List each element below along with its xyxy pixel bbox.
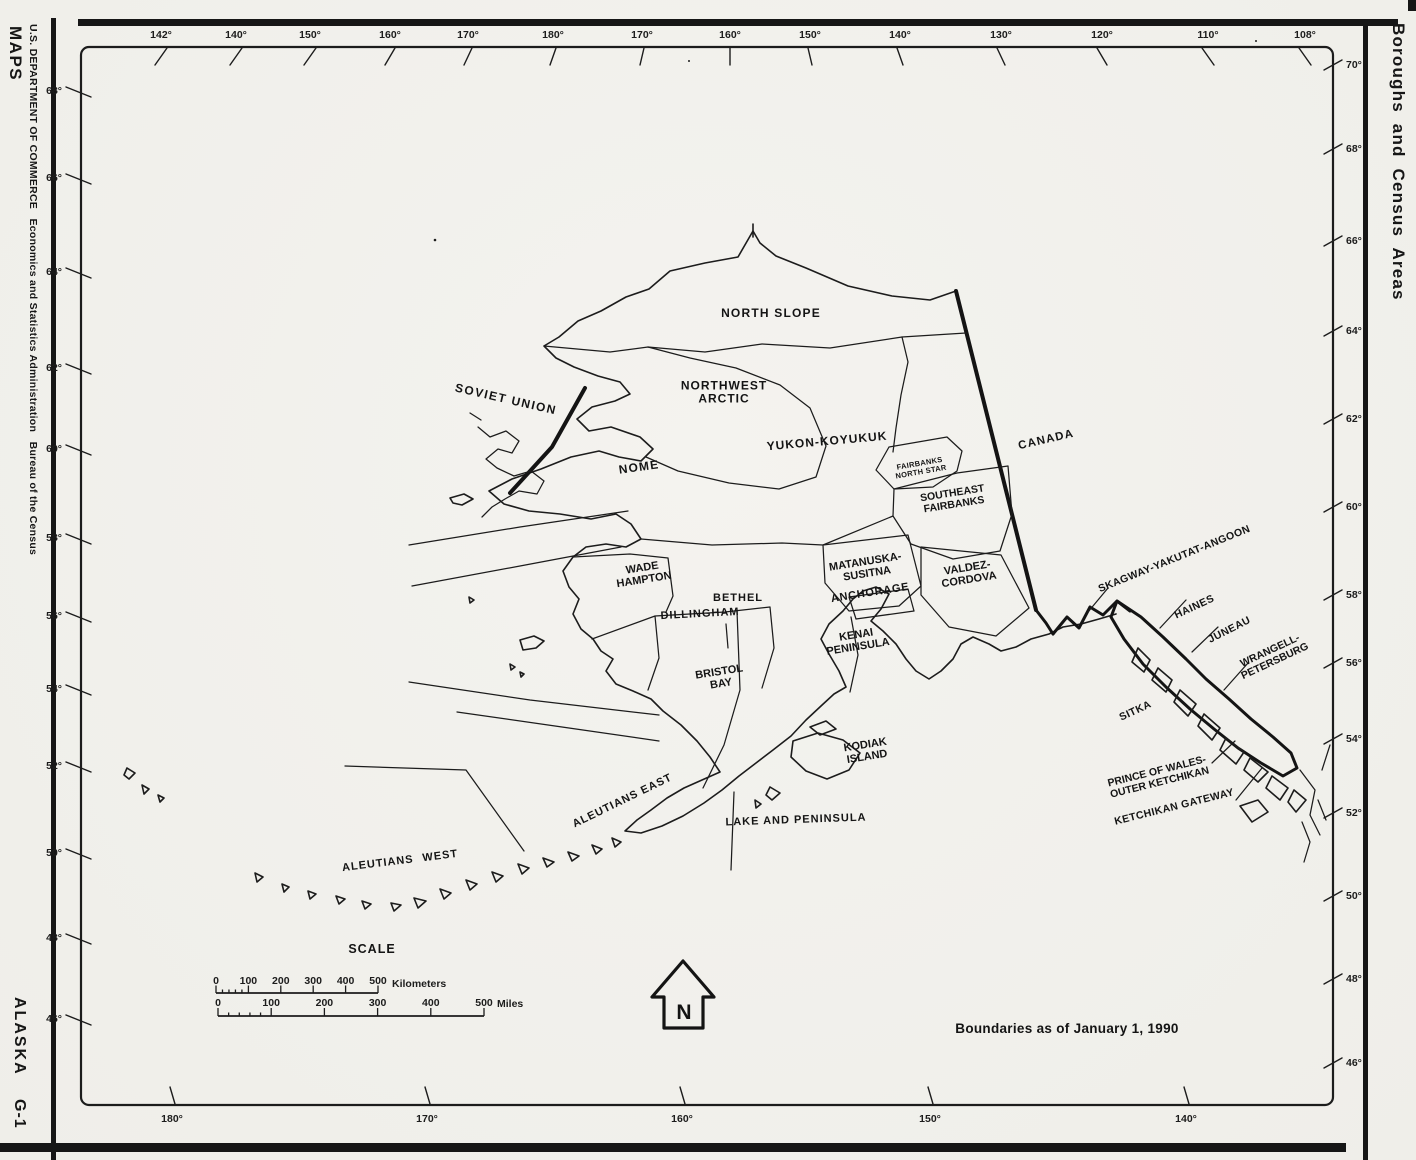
region-label-bristol-bay: BRISTOLBAY bbox=[695, 662, 747, 693]
graticule-tick-top bbox=[464, 48, 472, 65]
scale-tick-label: 100 bbox=[262, 997, 280, 1009]
region-label-skagway-yakutat-angoon: SKAGWAY-YAKUTAT-ANGOON bbox=[1097, 523, 1252, 595]
graticule-tick-top bbox=[550, 48, 556, 65]
graticule-label-top: 170° bbox=[631, 29, 653, 41]
graticule-label-left: 68° bbox=[46, 85, 62, 97]
km-unit-label: Kilometers bbox=[392, 978, 446, 990]
graticule-label-right: 46° bbox=[1346, 1057, 1362, 1069]
region-label-aleutians-west: ALEUTIANS WEST bbox=[341, 848, 458, 874]
scale-tick-label: 0 bbox=[213, 975, 219, 987]
graticule-label-right: 62° bbox=[1346, 413, 1362, 425]
scan-speck bbox=[1255, 40, 1257, 42]
region-label-nome: NOME bbox=[618, 457, 660, 477]
graticule-label-right: 50° bbox=[1346, 890, 1362, 902]
graticule-label-top: 170° bbox=[457, 29, 479, 41]
mi-scale-ticks: 0100200300400500 bbox=[215, 997, 493, 1016]
graticule-label-left: 66° bbox=[46, 172, 62, 184]
region-label-northwest-arctic: NORTHWESTARCTIC bbox=[681, 379, 767, 406]
graticule-label-left: 64° bbox=[46, 266, 62, 278]
scan-speck bbox=[434, 239, 437, 242]
scale-tick-label: 100 bbox=[240, 975, 258, 987]
scan-corner-chunk bbox=[1408, 0, 1416, 11]
graticule-label-top: 150° bbox=[299, 29, 321, 41]
scale-tick-label: 300 bbox=[369, 997, 387, 1009]
graticule-label-bottom: 180° bbox=[161, 1113, 183, 1125]
alaska-mainland-coastline bbox=[489, 231, 1116, 833]
graticule-label-right: 48° bbox=[1346, 973, 1362, 985]
region-labels: SOVIET UNIONNORTH SLOPENORTHWESTARCTICNO… bbox=[341, 306, 1310, 874]
scale-title: SCALE bbox=[348, 942, 395, 956]
graticule-tick-left bbox=[66, 268, 91, 278]
graticule-tick-left bbox=[66, 534, 91, 544]
scan-speck bbox=[688, 60, 690, 62]
bering-sea-islands bbox=[450, 494, 544, 677]
panhandle-fjord-lines bbox=[1300, 745, 1330, 862]
region-label-juneau: JUNEAU bbox=[1206, 614, 1253, 646]
kodiak-island-group bbox=[755, 721, 860, 808]
graticule-tick-left bbox=[66, 174, 91, 184]
aleutian-islands-chain bbox=[124, 768, 621, 911]
mi-unit-label: Miles bbox=[497, 998, 523, 1010]
graticule-tick-left bbox=[66, 849, 91, 859]
graticule-label-left: 52° bbox=[46, 760, 62, 772]
scale-tick-label: 500 bbox=[369, 975, 387, 987]
graticule-tick-top bbox=[1097, 48, 1107, 65]
graticule-label-top: 140° bbox=[889, 29, 911, 41]
north-arrow-letter: N bbox=[676, 1001, 691, 1024]
region-label-haines: HAINES bbox=[1173, 592, 1217, 621]
graticule-label-left: 48° bbox=[46, 932, 62, 944]
yukon-koyukuk-east-boundary bbox=[893, 337, 908, 452]
graticule-label-bottom: 150° bbox=[919, 1113, 941, 1125]
region-label-north-slope: NORTH SLOPE bbox=[721, 306, 821, 320]
graticule-label-right: 54° bbox=[1346, 733, 1362, 745]
graticule-label-top: 120° bbox=[1091, 29, 1113, 41]
km-scale-ticks: 0100200300400500 bbox=[213, 975, 387, 993]
scan-line-right bbox=[1363, 19, 1368, 1160]
graticule-tick-left bbox=[66, 364, 91, 374]
graticule-tick-left bbox=[66, 1015, 91, 1025]
graticule-tick-bottom bbox=[928, 1087, 933, 1104]
scale-tick-label: 400 bbox=[422, 997, 440, 1009]
graticule-label-bottom: 170° bbox=[416, 1113, 438, 1125]
graticule-label-top: 108° bbox=[1294, 29, 1316, 41]
graticule-tick-top bbox=[1299, 48, 1311, 65]
region-label-wrangell-petersburg: WRANGELL-PETERSBURG bbox=[1234, 630, 1310, 682]
graticule-label-top: 160° bbox=[719, 29, 741, 41]
graticule-label-right: 56° bbox=[1346, 657, 1362, 669]
graticule-tick-top bbox=[304, 48, 316, 65]
graticule-label-top: 160° bbox=[379, 29, 401, 41]
scale-tick-label: 500 bbox=[475, 997, 493, 1009]
region-label-fairbanks-north-star: FAIRBANKSNORTH STAR bbox=[893, 454, 947, 480]
southeast-panhandle-outline bbox=[1111, 601, 1297, 776]
north-arrow: N bbox=[652, 961, 714, 1028]
graticule-label-right: 66° bbox=[1346, 235, 1362, 247]
graticule-label-right: 52° bbox=[1346, 807, 1362, 819]
graticule-label-left: 54° bbox=[46, 683, 62, 695]
region-label-aleutians-east: ALEUTIANS EAST bbox=[571, 772, 675, 831]
graticule-label-left: 58° bbox=[46, 532, 62, 544]
scan-bar-bottom bbox=[0, 1143, 1346, 1152]
graticule-label-bottom: 160° bbox=[671, 1113, 693, 1125]
graticule-tick-left bbox=[66, 762, 91, 772]
graticule-tick-top bbox=[230, 48, 242, 65]
graticule-label-top: 150° bbox=[799, 29, 821, 41]
graticule-label-left: 62° bbox=[46, 362, 62, 374]
graticule-tick-left bbox=[66, 934, 91, 944]
canada-border-panhandle-join bbox=[1036, 610, 1053, 634]
graticule-tick-bottom bbox=[1184, 1087, 1189, 1104]
region-label-yukon-koyukuk: YUKON-KOYUKUK bbox=[766, 429, 888, 453]
boundaries-note: Boundaries as of January 1, 1990 bbox=[955, 1021, 1178, 1036]
region-label-sitka: SITKA bbox=[1117, 698, 1153, 723]
graticule-label-top: 142° bbox=[150, 29, 172, 41]
graticule-label-right: 64° bbox=[1346, 325, 1362, 337]
graticule-label-left: 46° bbox=[46, 1013, 62, 1025]
graticule-label-top: 180° bbox=[542, 29, 564, 41]
graticule-label-top: 130° bbox=[990, 29, 1012, 41]
map-sheet: U.S. DEPARTMENT OF COMMERCE Economics an… bbox=[0, 0, 1416, 1160]
graticule-right: 70°68°66°64°62°60°58°56°54°52°50°48°46° bbox=[1324, 59, 1362, 1069]
region-label-canada: CANADA bbox=[1017, 428, 1075, 453]
graticule-label-right: 68° bbox=[1346, 143, 1362, 155]
graticule-label-right: 58° bbox=[1346, 589, 1362, 601]
graticule-tick-bottom bbox=[680, 1087, 685, 1104]
graticule-label-top: 140° bbox=[225, 29, 247, 41]
graticule-tick-top bbox=[808, 48, 812, 65]
scan-bar-top bbox=[78, 19, 1398, 26]
graticule-tick-bottom bbox=[170, 1087, 175, 1104]
graticule-tick-top bbox=[897, 48, 903, 65]
graticule-tick-top bbox=[155, 48, 167, 65]
scale-tick-label: 200 bbox=[272, 975, 290, 987]
graticule-tick-bottom bbox=[425, 1087, 430, 1104]
bristol-bay-lake-peninsula-boundary bbox=[703, 611, 740, 870]
region-label-wade-hampton: WADEHAMPTON bbox=[614, 558, 673, 590]
scale-tick-label: 400 bbox=[337, 975, 355, 987]
scale-tick-label: 200 bbox=[316, 997, 334, 1009]
region-label-lake-and-peninsula: LAKE AND PENINSULA bbox=[725, 812, 866, 829]
graticule-label-bottom: 140° bbox=[1175, 1113, 1197, 1125]
region-label-kodiak-island: KODIAKISLAND bbox=[843, 736, 890, 767]
graticule-label-right: 70° bbox=[1346, 59, 1362, 71]
graticule-tick-top bbox=[640, 48, 644, 65]
graticule-label-right: 60° bbox=[1346, 501, 1362, 513]
map-canvas: 142°140°150°160°170°180°170°160°150°140°… bbox=[0, 0, 1416, 1160]
region-label-prince-of-wales-outer-ketchikan: PRINCE OF WALES-OUTER KETCHIKAN bbox=[1106, 753, 1210, 800]
scale-block: SCALE 0100200300400500 0100200300400500 … bbox=[213, 942, 523, 1016]
scale-tick-label: 0 bbox=[215, 997, 221, 1009]
graticule-tick-top bbox=[997, 48, 1005, 65]
region-label-bethel: BETHEL bbox=[713, 592, 763, 604]
scan-line-left bbox=[51, 18, 56, 1160]
region-label-anchorage: ANCHORAGE bbox=[830, 581, 910, 605]
graticule-label-left: 50° bbox=[46, 847, 62, 859]
graticule-tick-left bbox=[66, 612, 91, 622]
scale-tick-label: 300 bbox=[304, 975, 322, 987]
graticule-label-top: 110° bbox=[1197, 29, 1218, 41]
region-label-soviet-union: SOVIET UNION bbox=[454, 380, 558, 417]
graticule-tick-left bbox=[66, 685, 91, 695]
graticule-label-left: 56° bbox=[46, 610, 62, 622]
graticule-tick-top bbox=[1202, 48, 1214, 65]
graticule-label-left: 60° bbox=[46, 443, 62, 455]
graticule-tick-left bbox=[66, 445, 91, 455]
region-label-valdez-cordova: VALDEZ-CORDOVA bbox=[939, 558, 998, 590]
graticule-tick-left bbox=[66, 87, 91, 97]
graticule-tick-top bbox=[385, 48, 395, 65]
region-label-matanuska-susitna: MATANUSKA-SUSITNA bbox=[828, 550, 904, 585]
region-label-dillingham: DILLINGHAM bbox=[660, 606, 740, 622]
northwest-arctic-boundary bbox=[646, 347, 826, 489]
